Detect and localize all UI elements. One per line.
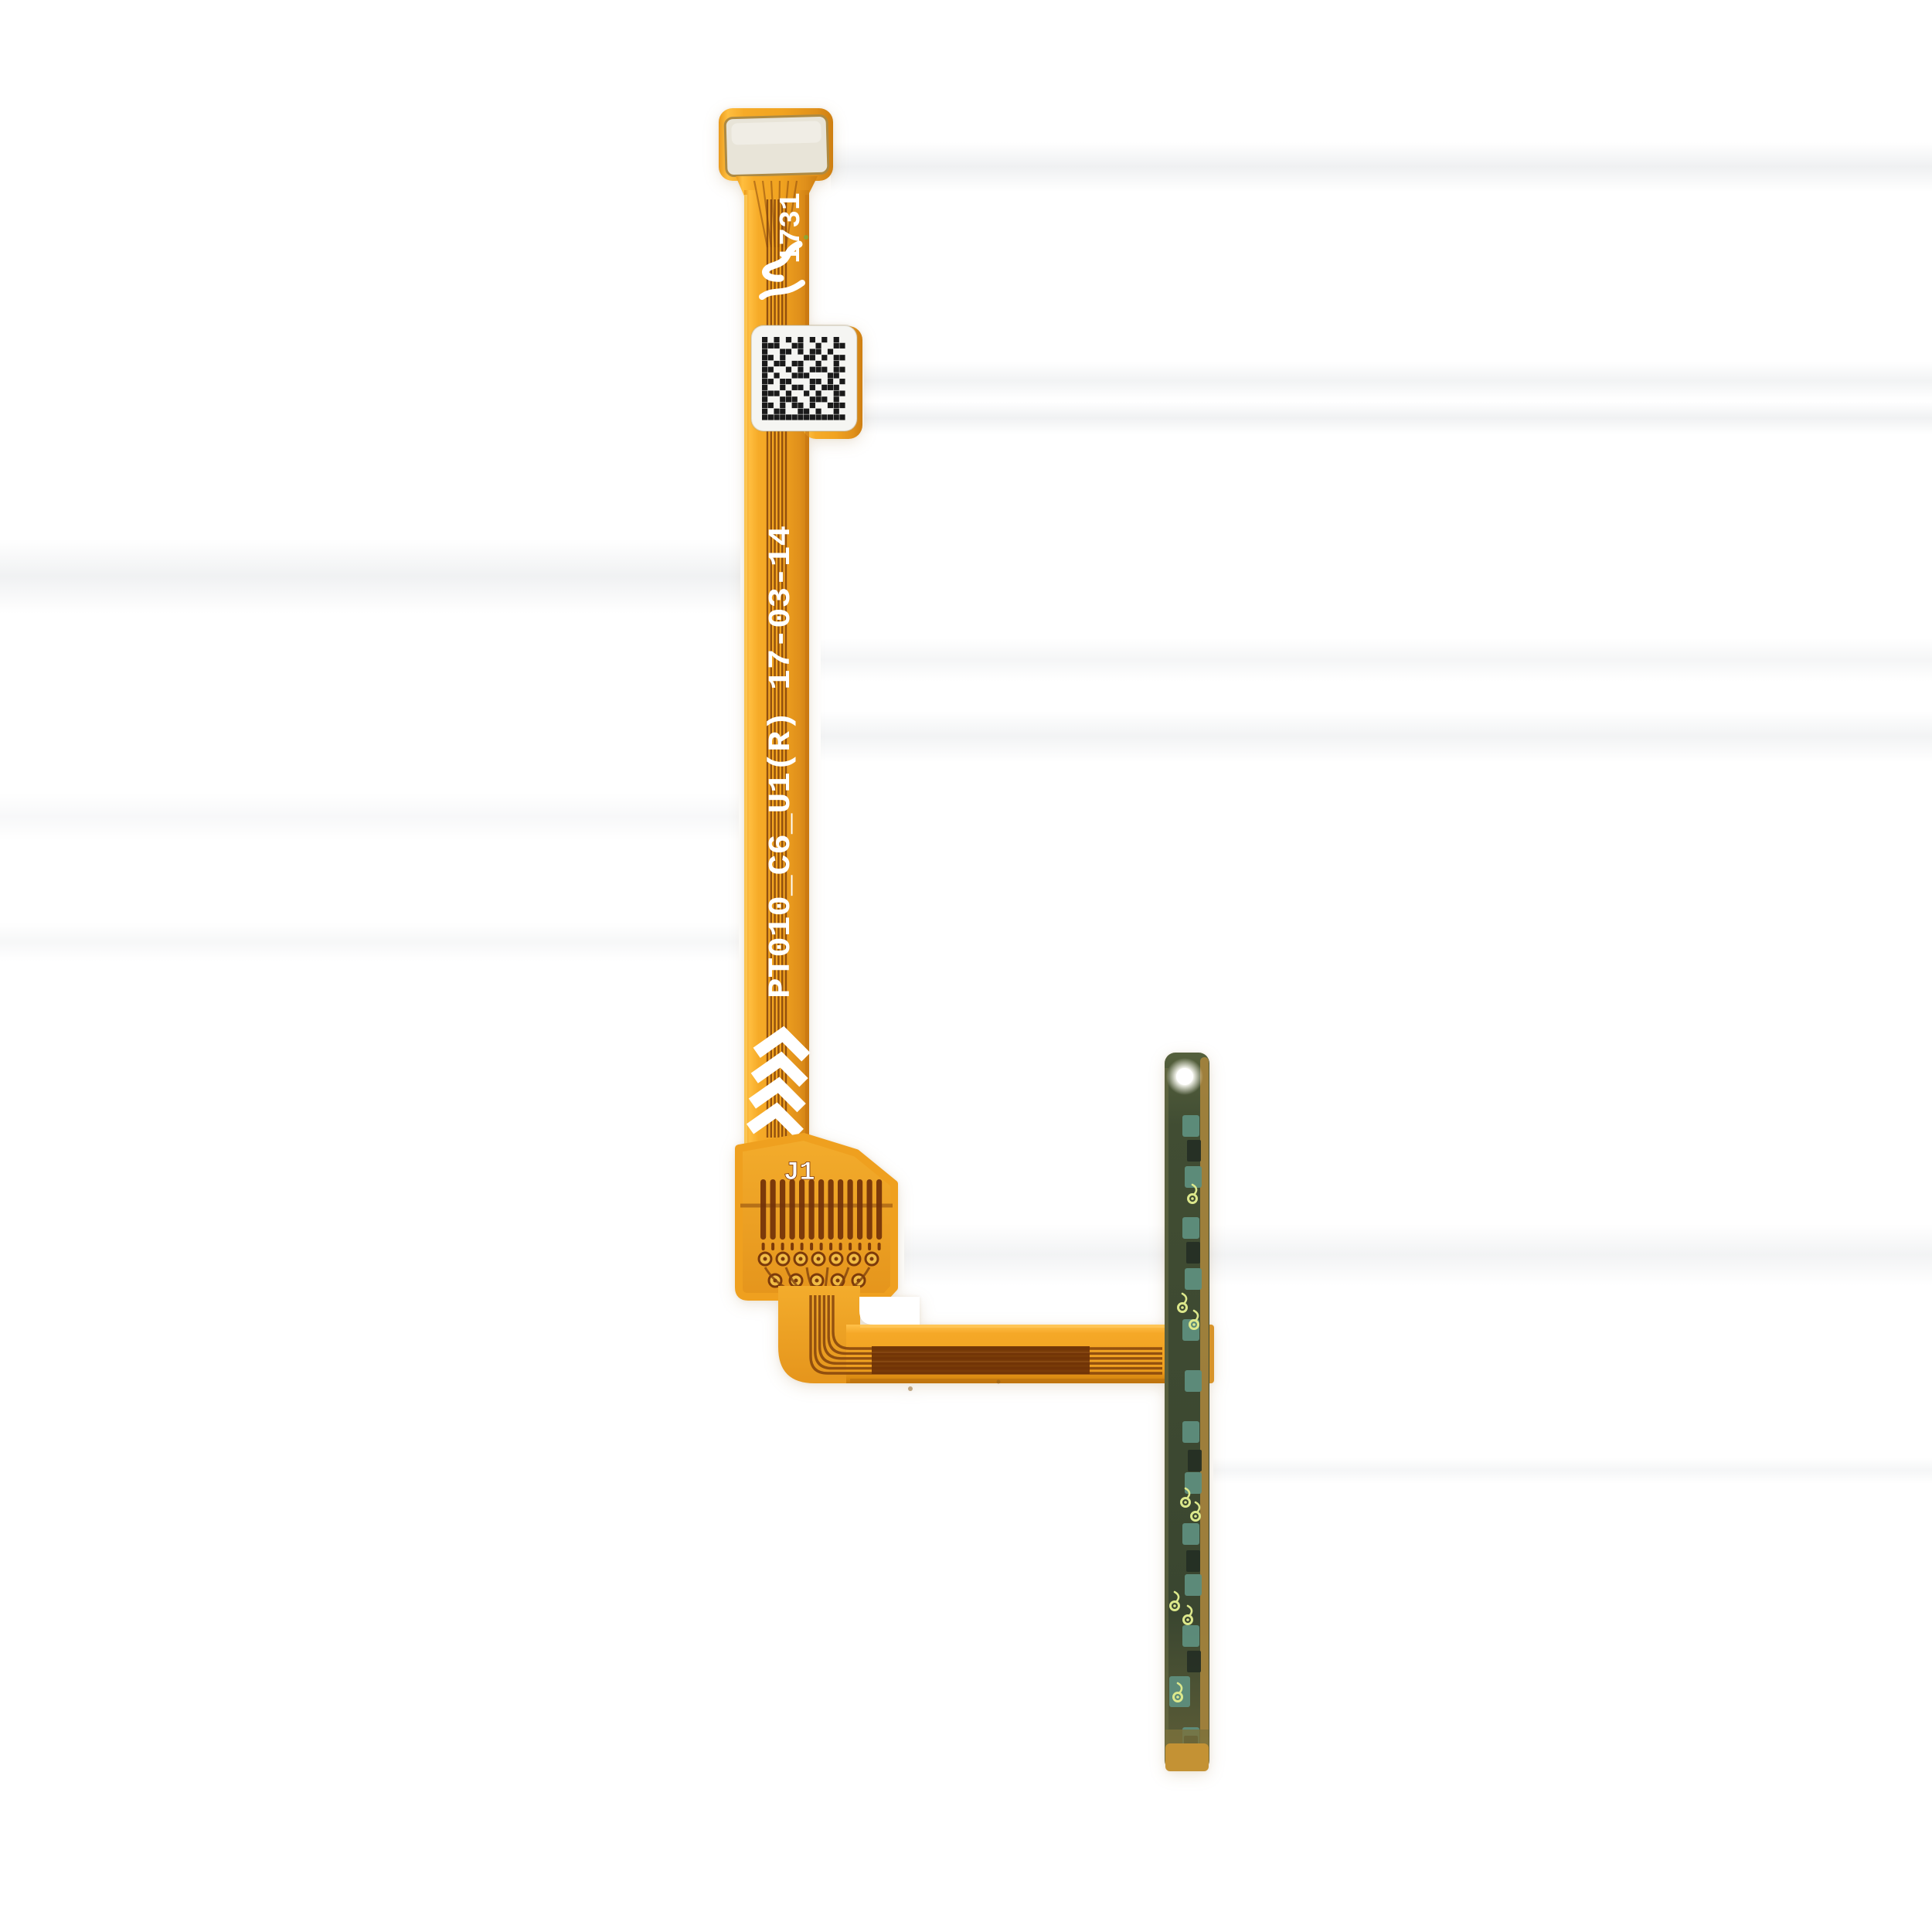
qr-module (768, 355, 774, 360)
qr-module (774, 361, 779, 366)
connector-finger (848, 1179, 853, 1240)
stiffener-highlight (731, 121, 821, 145)
qr-module (834, 403, 839, 408)
eyelet-center (1194, 1515, 1197, 1518)
donut-pad-hole (870, 1257, 874, 1261)
finger-stub (868, 1243, 871, 1250)
strip-left-edge (1165, 1068, 1168, 1760)
connector-finger (809, 1179, 815, 1240)
strip-gold-edge (1200, 1057, 1209, 1767)
connector-finger (760, 1179, 766, 1240)
qr-module (821, 414, 827, 420)
qr-module (762, 367, 767, 372)
membrane-pad (1182, 1421, 1199, 1443)
component-block (1187, 1651, 1201, 1672)
finger-stub (801, 1243, 804, 1250)
qr-module (839, 403, 845, 408)
membrane-pad (1182, 1523, 1199, 1545)
qr-module (821, 355, 827, 360)
qr-module (792, 403, 798, 408)
connector-finger (838, 1179, 843, 1240)
qr-module (768, 414, 774, 420)
qr-module (762, 385, 767, 390)
qr-module (798, 409, 803, 414)
eyelet-center (1176, 1696, 1179, 1699)
qr-datamatrix (751, 325, 857, 431)
qr-module (828, 403, 833, 408)
qr-module (792, 343, 798, 349)
donut-pad-hole (764, 1257, 767, 1261)
qr-module (804, 414, 809, 420)
qr-module (798, 414, 803, 420)
finger-stub (781, 1243, 784, 1250)
qr-module (786, 367, 791, 372)
donut-pad-hole (852, 1257, 856, 1261)
qr-module (839, 367, 845, 372)
qr-module (792, 414, 798, 420)
qr-module (815, 361, 821, 366)
donut-pad-hole (781, 1257, 785, 1261)
qr-module (762, 343, 767, 349)
qr-module (834, 372, 839, 378)
qr-module (798, 385, 803, 390)
board-connector: J1 (739, 1137, 894, 1297)
finger-stub (762, 1243, 765, 1250)
qr-module (815, 379, 821, 384)
qr-module (774, 414, 779, 420)
qr-module (839, 355, 845, 360)
qr-module (786, 337, 791, 342)
qr-module (792, 396, 798, 402)
ribbon-top-highlight (860, 1325, 1168, 1328)
qr-module (762, 390, 767, 396)
qr-module (780, 361, 785, 366)
qr-module (810, 403, 815, 408)
donut-pad-hole (836, 1279, 840, 1283)
membrane-pad (1185, 1370, 1202, 1392)
qr-module (815, 390, 821, 396)
qr-module (839, 414, 845, 420)
connector-finger (828, 1179, 834, 1240)
connector-finger (818, 1179, 824, 1240)
donut-pad-hole (815, 1279, 819, 1283)
cutout-notch (859, 1297, 920, 1325)
strip-bottom-band (1165, 1743, 1209, 1771)
qr-module (780, 355, 785, 360)
qr-module (834, 390, 839, 396)
connector-finger (799, 1179, 804, 1240)
qr-module (839, 379, 845, 384)
qr-module (828, 385, 833, 390)
eyelet-center (1181, 1306, 1184, 1309)
qr-module (798, 349, 803, 354)
membrane-pad (1185, 1268, 1202, 1290)
button-strip-pcb (1165, 1053, 1214, 1771)
dust-speck (997, 1380, 1001, 1384)
qr-module (828, 372, 833, 378)
membrane-pad (1182, 1625, 1199, 1647)
ribbon-dark-band (872, 1346, 1090, 1374)
qr-module (815, 414, 821, 420)
finger-stub (771, 1243, 774, 1250)
finger-stub (810, 1243, 813, 1250)
membrane-pad (1182, 1217, 1199, 1239)
qr-module (815, 396, 821, 402)
qr-module (834, 361, 839, 366)
qr-module (834, 396, 839, 402)
qr-module (804, 355, 809, 360)
qr-module (810, 396, 815, 402)
qr-module (810, 337, 815, 342)
qr-module (780, 414, 785, 420)
qr-module (828, 349, 833, 354)
qr-module (792, 372, 798, 378)
finger-stub (859, 1243, 862, 1250)
qr-module (774, 372, 779, 378)
qr-module (834, 355, 839, 360)
qr-module (768, 343, 774, 349)
qr-module (762, 372, 767, 378)
qr-module (792, 385, 798, 390)
qr-module (834, 414, 839, 420)
qr-module (798, 403, 803, 408)
qr-module (780, 349, 785, 354)
eyelet-center (1192, 1323, 1196, 1326)
qr-module (774, 409, 779, 414)
qr-module (762, 361, 767, 366)
qr-module (804, 372, 809, 378)
eyelet-center (1173, 1604, 1176, 1607)
connector-finger (876, 1179, 882, 1240)
qr-module (798, 367, 803, 372)
qr-module (821, 337, 827, 342)
qr-module (762, 396, 767, 402)
qr-module (780, 379, 785, 384)
finger-stub (878, 1243, 881, 1250)
part-number-text: PT010_C6_U1(R) 17-03-14 (764, 526, 799, 998)
qr-module (774, 390, 779, 396)
qr-module (815, 343, 821, 349)
qr-module (815, 367, 821, 372)
qr-module (762, 379, 767, 384)
dust-speck (908, 1386, 913, 1391)
connector-finger (770, 1179, 776, 1240)
qr-module (786, 390, 791, 396)
qr-module (768, 390, 774, 396)
finger-stub (849, 1243, 852, 1250)
qr-module (821, 367, 827, 372)
qr-module (762, 337, 767, 342)
qr-module (828, 414, 833, 420)
connector-finger (780, 1179, 785, 1240)
finger-stub (839, 1243, 842, 1250)
qr-module (834, 409, 839, 414)
stiffener (725, 115, 828, 176)
finger-stub (829, 1243, 832, 1250)
component-block (1187, 1140, 1201, 1162)
qr-module (768, 367, 774, 372)
qr-module (834, 367, 839, 372)
connector-finger (790, 1179, 795, 1240)
qr-module (768, 379, 774, 384)
qr-module (828, 379, 833, 384)
qr-module (792, 361, 798, 366)
component-block (1186, 1550, 1200, 1572)
qr-module (768, 403, 774, 408)
qr-module (762, 349, 767, 354)
cable-left-highlight (744, 195, 747, 1158)
donut-pad-hole (799, 1257, 803, 1261)
flex-cable-body: 1731 PT010_C6_U1(R) 17-03-14 J1 (719, 108, 1168, 1391)
eyelet-center (1191, 1197, 1194, 1200)
connector-finger (867, 1179, 872, 1240)
flex-cable-photo: 1731 PT010_C6_U1(R) 17-03-14 J1 (0, 0, 1932, 1932)
component-block (1186, 1242, 1200, 1264)
eyelet-center (1184, 1501, 1187, 1504)
donut-pad-hole (835, 1257, 838, 1261)
qr-module (780, 403, 785, 408)
qr-module (786, 349, 791, 354)
qr-module (804, 409, 809, 414)
qr-module (798, 361, 803, 366)
qr-module (821, 396, 827, 402)
finger-stub (791, 1243, 794, 1250)
qr-module (834, 337, 839, 342)
eyelet-center (1186, 1618, 1189, 1621)
qr-module (810, 367, 815, 372)
qr-module (780, 385, 785, 390)
qr-module (839, 343, 845, 349)
qr-module (774, 337, 779, 342)
qr-module (834, 343, 839, 349)
qr-module (786, 396, 791, 402)
qr-module (780, 396, 785, 402)
donut-pad-hole (817, 1257, 821, 1261)
qr-module (810, 385, 815, 390)
component-block (1188, 1450, 1202, 1471)
ribbon-bottom-shadow (850, 1379, 1168, 1383)
qr-module (786, 379, 791, 384)
qr-module (762, 409, 767, 414)
qr-module (762, 403, 767, 408)
qr-module (798, 372, 803, 378)
finger-stub (820, 1243, 823, 1250)
qr-module (798, 343, 803, 349)
qr-module (839, 390, 845, 396)
qr-module (810, 414, 815, 420)
qr-module (786, 414, 791, 420)
qr-module (798, 337, 803, 342)
connector-finger (857, 1179, 862, 1240)
qr-module (834, 385, 839, 390)
qr-module (780, 409, 785, 414)
qr-module (815, 409, 821, 414)
qr-module (762, 355, 767, 360)
qr-module (774, 343, 779, 349)
qr-module (810, 349, 815, 354)
qr-module (815, 349, 821, 354)
membrane-pad (1182, 1115, 1199, 1137)
led-dot (1176, 1068, 1193, 1085)
qr-module (821, 385, 827, 390)
qr-module (762, 414, 767, 420)
photo-stage: 1731 PT010_C6_U1(R) 17-03-14 J1 (0, 0, 1932, 1932)
qr-module (804, 390, 809, 396)
membrane-pad (1185, 1574, 1202, 1596)
qr-module (810, 355, 815, 360)
qr-module (810, 379, 815, 384)
